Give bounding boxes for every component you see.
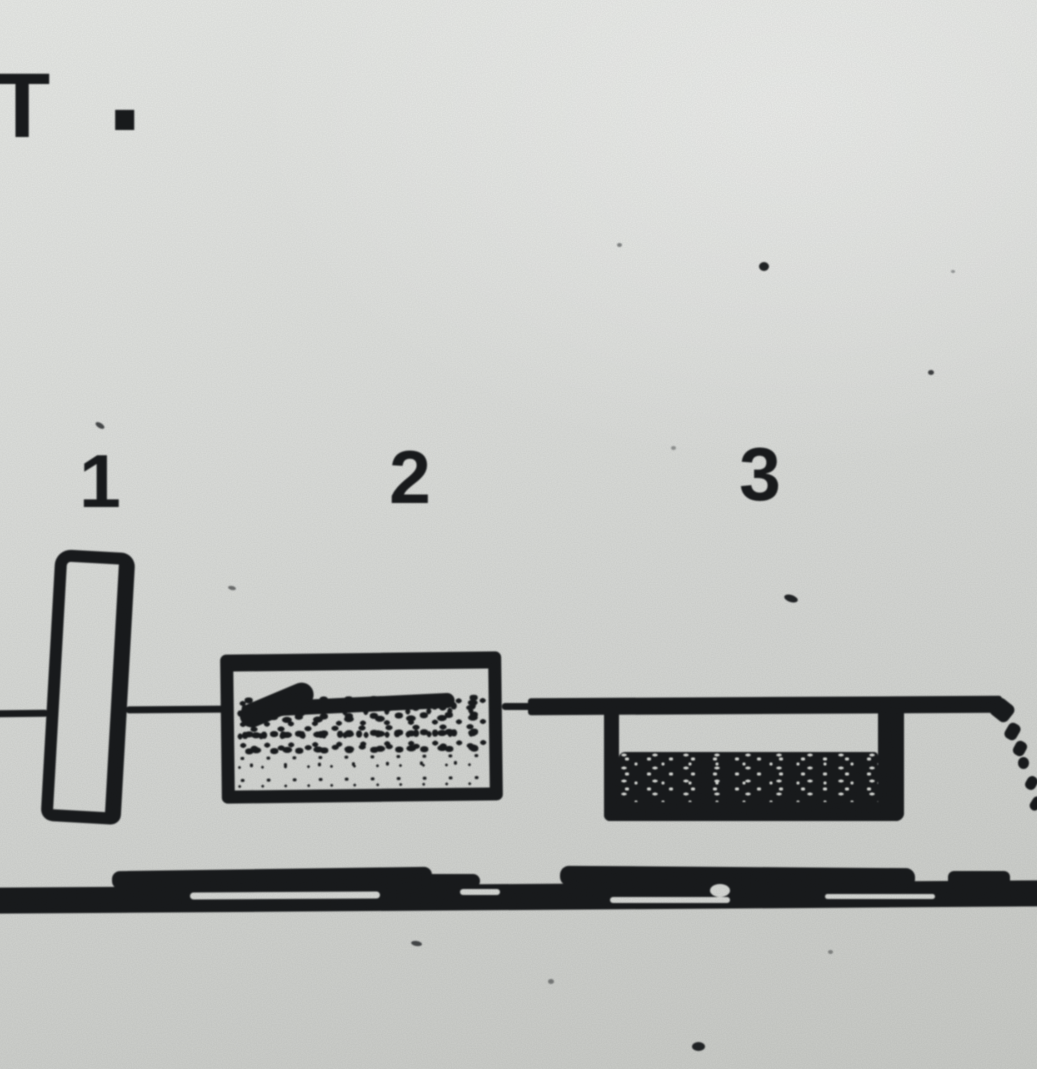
component-label-1: 1 bbox=[70, 444, 130, 519]
base-bar-gap bbox=[710, 884, 730, 897]
dust-speck bbox=[828, 950, 833, 954]
dust-speck bbox=[617, 243, 622, 247]
dust-speck bbox=[228, 585, 237, 591]
axis-line-middle-segment bbox=[126, 706, 228, 714]
dust-speck bbox=[928, 370, 934, 375]
diagonal-dash bbox=[1018, 757, 1029, 769]
diagonal-dash bbox=[1023, 774, 1037, 792]
diagonal-dash bbox=[1011, 739, 1029, 758]
base-bar-gap bbox=[190, 892, 380, 900]
base-bar-gap bbox=[460, 889, 500, 895]
stipple-fill-sparse bbox=[236, 750, 487, 789]
dust-speck bbox=[783, 593, 798, 604]
component-label-2: 2 bbox=[380, 440, 440, 515]
dust-speck bbox=[671, 446, 676, 450]
component-label-3: 3 bbox=[730, 437, 790, 512]
dust-speck bbox=[759, 262, 769, 271]
dust-speck bbox=[411, 940, 423, 947]
photographed-printed-diagram: T . 1 2 3 bbox=[0, 0, 1037, 1069]
title-letter-t: T bbox=[0, 60, 50, 152]
component-3-stippled-trough bbox=[604, 713, 904, 821]
component-1-vertical-plate bbox=[40, 549, 135, 825]
base-bar-gap bbox=[825, 894, 935, 899]
diagonal-dash bbox=[1028, 794, 1037, 812]
base-bar-gap bbox=[610, 897, 730, 903]
dust-speck bbox=[548, 979, 554, 984]
axis-line-left-segment bbox=[0, 710, 48, 718]
diagonal-dash bbox=[1003, 721, 1023, 742]
dust-speck bbox=[94, 421, 105, 431]
dust-speck bbox=[692, 1042, 705, 1051]
ink-layer: T . 1 2 3 bbox=[0, 0, 1037, 1069]
stipple-fill-band bbox=[619, 752, 878, 802]
dust-speck bbox=[951, 270, 955, 273]
component-2-stippled-box bbox=[220, 651, 503, 803]
title-period: . bbox=[106, 16, 144, 151]
